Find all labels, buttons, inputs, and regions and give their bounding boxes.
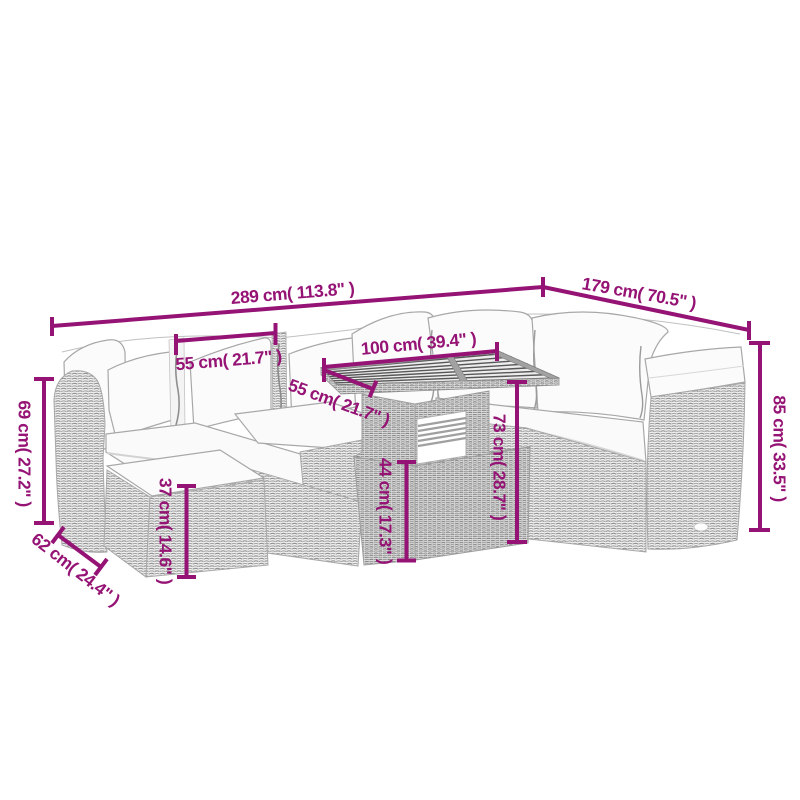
svg-text:69 cm( 27.2" ): 69 cm( 27.2" ) — [14, 400, 34, 506]
svg-text:44 cm( 17.3" ): 44 cm( 17.3" ) — [375, 458, 395, 564]
svg-text:37 cm( 14.6" ): 37 cm( 14.6" ) — [155, 478, 175, 584]
svg-text:85 cm( 33.5" ): 85 cm( 33.5" ) — [769, 395, 789, 501]
svg-text:73 cm( 28.7" ): 73 cm( 28.7" ) — [489, 414, 509, 520]
